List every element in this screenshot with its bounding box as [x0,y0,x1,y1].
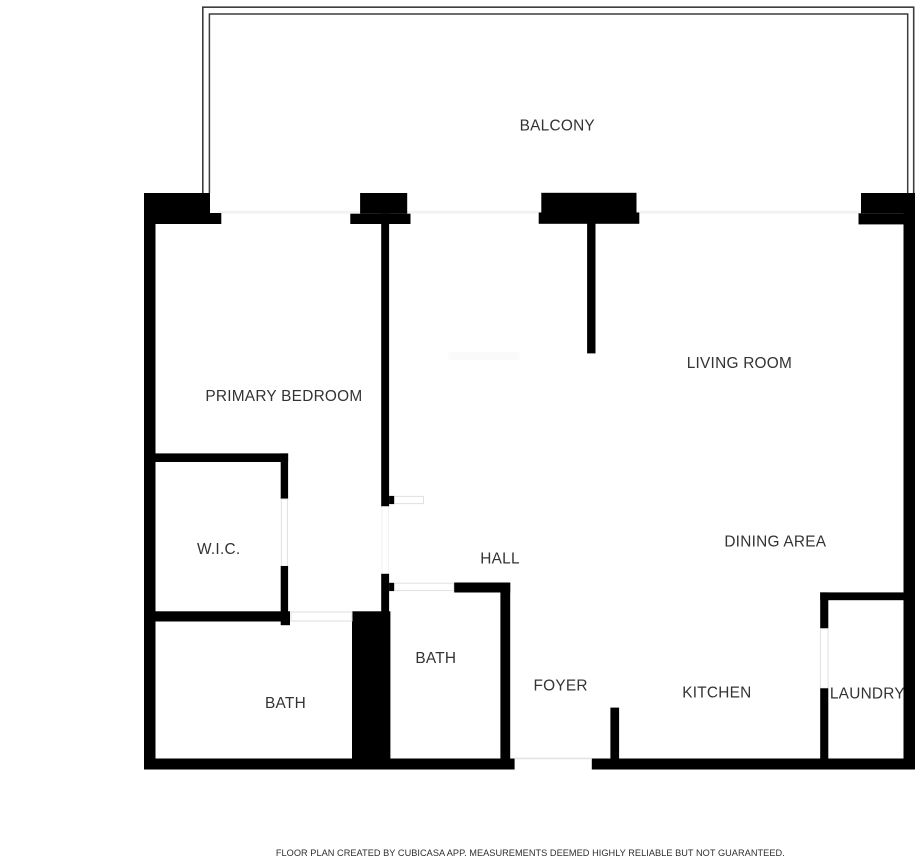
svg-text:LIVING ROOM: LIVING ROOM [687,355,792,372]
svg-text:BATH: BATH [415,650,456,667]
svg-text:LAUNDRY: LAUNDRY [830,685,905,702]
svg-text:BATH: BATH [265,695,306,712]
svg-text:PRIMARY BEDROOM: PRIMARY BEDROOM [205,388,362,405]
svg-text:DINING AREA: DINING AREA [724,533,826,550]
svg-text:FLOOR PLAN CREATED BY CUBICASA: FLOOR PLAN CREATED BY CUBICASA APP. MEAS… [276,848,785,858]
svg-text:KITCHEN: KITCHEN [682,684,751,701]
svg-text:W.I.C.: W.I.C. [197,541,240,558]
svg-text:FOYER: FOYER [533,678,587,695]
svg-text:BALCONY: BALCONY [520,118,595,135]
svg-text:HALL: HALL [480,550,520,567]
